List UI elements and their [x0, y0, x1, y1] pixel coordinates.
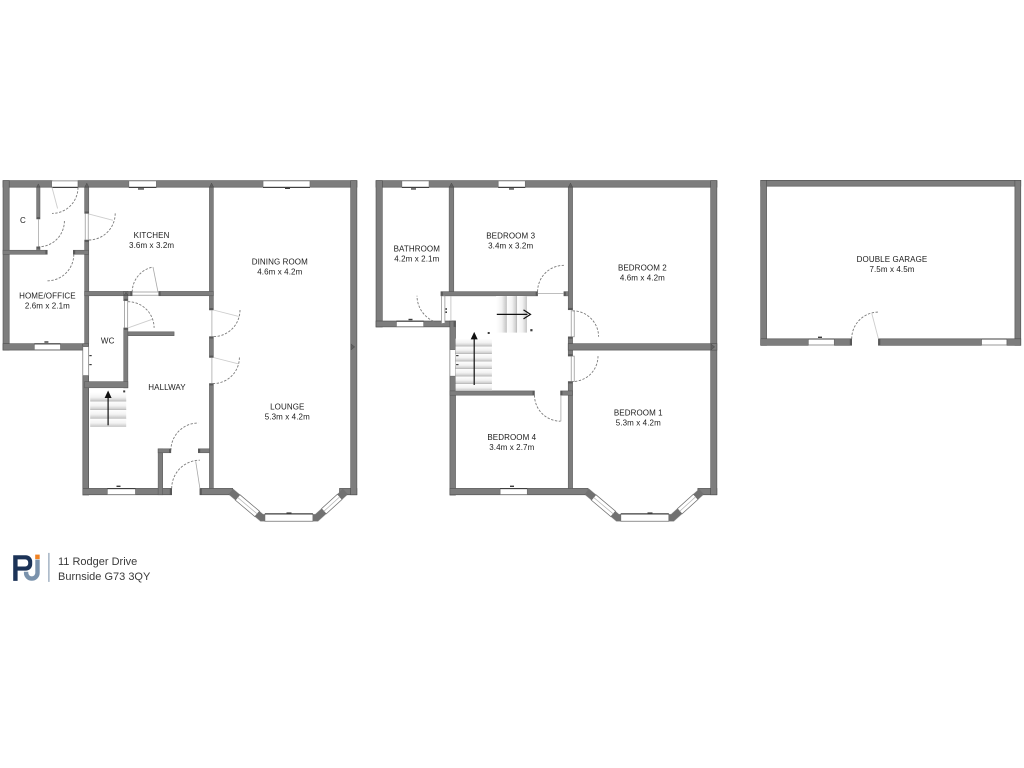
svg-text:LOUNGE: LOUNGE — [270, 403, 304, 412]
svg-text:5.3m x 4.2m: 5.3m x 4.2m — [265, 413, 310, 422]
svg-text:Burnside G73 3QY: Burnside G73 3QY — [58, 571, 151, 583]
svg-text:BEDROOM 1: BEDROOM 1 — [614, 409, 663, 418]
svg-text:WC: WC — [101, 337, 115, 346]
svg-text:2.6m x 2.1m: 2.6m x 2.1m — [25, 302, 70, 311]
svg-text:DINING ROOM: DINING ROOM — [252, 258, 308, 267]
svg-text:BEDROOM 2: BEDROOM 2 — [618, 264, 667, 273]
svg-text:3.4m x 2.7m: 3.4m x 2.7m — [489, 443, 534, 452]
svg-text:DOUBLE GARAGE: DOUBLE GARAGE — [857, 255, 928, 264]
svg-text:5.3m x 4.2m: 5.3m x 4.2m — [616, 419, 661, 428]
svg-text:BEDROOM 4: BEDROOM 4 — [487, 433, 536, 442]
svg-text:C: C — [20, 216, 26, 225]
svg-text:BEDROOM 3: BEDROOM 3 — [486, 232, 535, 241]
svg-text:4.2m x 2.1m: 4.2m x 2.1m — [394, 255, 439, 264]
svg-text:11 Rodger Drive: 11 Rodger Drive — [58, 556, 137, 568]
svg-text:3.4m x 3.2m: 3.4m x 3.2m — [488, 242, 533, 251]
svg-text:KITCHEN: KITCHEN — [134, 231, 170, 240]
svg-text:4.6m x 4.2m: 4.6m x 4.2m — [620, 274, 665, 283]
svg-text:BATHROOM: BATHROOM — [394, 245, 441, 254]
svg-text:3.6m x 3.2m: 3.6m x 3.2m — [129, 241, 174, 250]
svg-text:HALLWAY: HALLWAY — [148, 383, 186, 392]
svg-text:4.6m x 4.2m: 4.6m x 4.2m — [257, 268, 302, 277]
svg-text:7.5m x 4.5m: 7.5m x 4.5m — [869, 265, 914, 274]
svg-text:HOME/OFFICE: HOME/OFFICE — [19, 292, 76, 301]
